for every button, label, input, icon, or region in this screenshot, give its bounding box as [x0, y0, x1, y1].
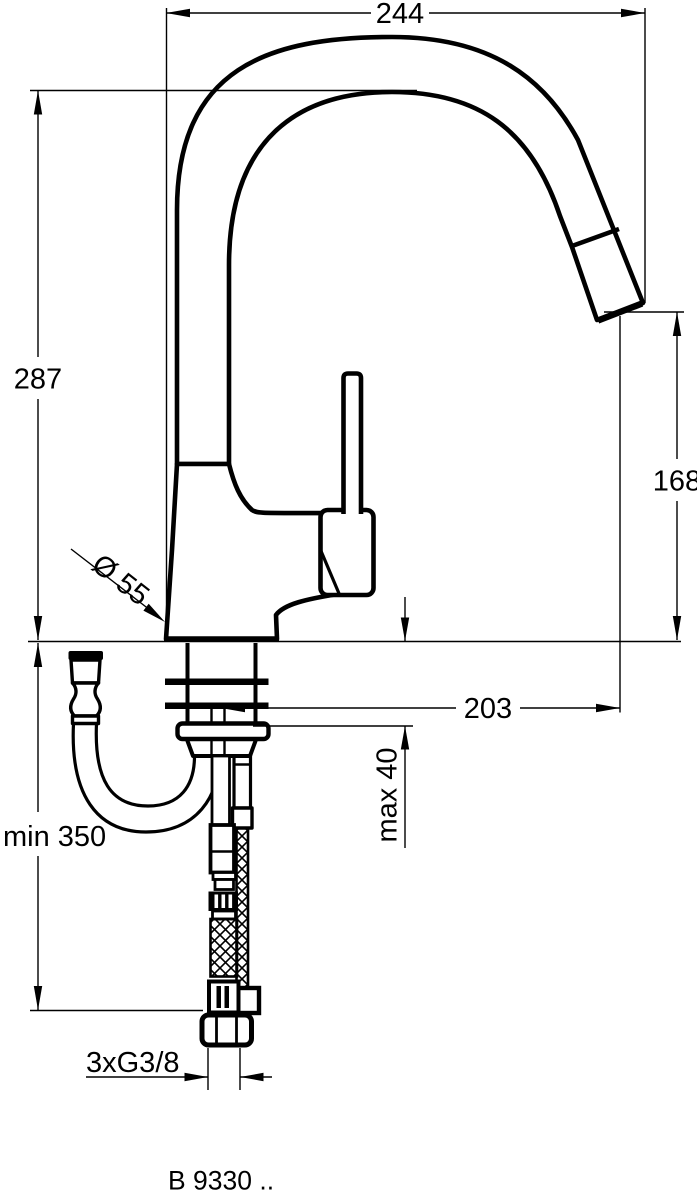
page: 244 287 168 203 max 40 min 350 3xG3/8	[0, 0, 697, 1200]
hose-end-connector	[71, 660, 100, 683]
label-base-diameter: Ø 55	[71, 548, 165, 622]
arrowhead	[185, 1073, 209, 1081]
faucet-spout	[177, 37, 643, 464]
faucet-dimension-drawing: 244 287 168 203 max 40 min 350 3xG3/8	[0, 0, 697, 1200]
arrowhead	[143, 604, 165, 622]
dim-min350-label: min 350	[3, 821, 106, 853]
arrowhead	[166, 9, 190, 17]
arrowhead	[34, 643, 42, 667]
arrowhead	[673, 616, 681, 640]
center-connector-a	[211, 825, 235, 873]
product-code: B 9330 ..	[168, 1166, 274, 1196]
arrowhead	[401, 618, 409, 642]
center-braided-hose	[211, 919, 238, 977]
dim-diameter-label: Ø 55	[86, 548, 155, 612]
right-hose-elbow	[238, 988, 260, 1013]
dim-287-label: 287	[14, 364, 62, 396]
knurl-stripe	[222, 895, 226, 909]
arrowhead	[34, 91, 42, 115]
dim-outlet-height-168: 168	[604, 312, 697, 640]
handle-lever	[344, 374, 362, 515]
dim-max40-label: max 40	[372, 747, 404, 842]
arrowhead	[621, 9, 645, 17]
mounting-washer-upper	[165, 679, 269, 686]
faucet-body	[164, 464, 338, 639]
dim-203-label: 203	[464, 693, 512, 725]
arrowhead	[34, 986, 42, 1010]
product-code-label: B 9330 ..	[168, 1166, 274, 1196]
handle-base-block	[321, 510, 374, 595]
center-tube	[212, 756, 230, 825]
dim-g38-label: 3xG3/8	[86, 1047, 180, 1079]
spout-outline	[177, 37, 643, 464]
hose-end-grip	[71, 683, 101, 716]
arrowhead	[673, 312, 681, 336]
arrowhead	[401, 726, 409, 750]
technical-drawing-figure: 244 287 168 203 max 40 min 350 3xG3/8	[0, 0, 697, 1200]
rib-bar	[225, 986, 230, 1008]
rib-bar	[217, 986, 222, 1008]
faucet-handle	[321, 374, 374, 596]
arrowhead	[596, 704, 620, 712]
hose-end-band	[73, 716, 99, 724]
ribbed-connector	[209, 982, 239, 1013]
center-fitting	[215, 880, 234, 890]
body-outline	[166, 464, 338, 639]
hex-connection-nut	[202, 1015, 252, 1045]
mounting-shank	[165, 643, 269, 756]
dim-connection-g38: 3xG3/8	[86, 1047, 272, 1090]
dim-244-label: 244	[376, 0, 424, 30]
knurl-stripe	[229, 895, 233, 909]
arrowhead	[34, 616, 42, 640]
dim-168-label: 168	[653, 466, 697, 498]
knurl-stripe	[215, 895, 219, 909]
arrowhead	[240, 1073, 264, 1081]
